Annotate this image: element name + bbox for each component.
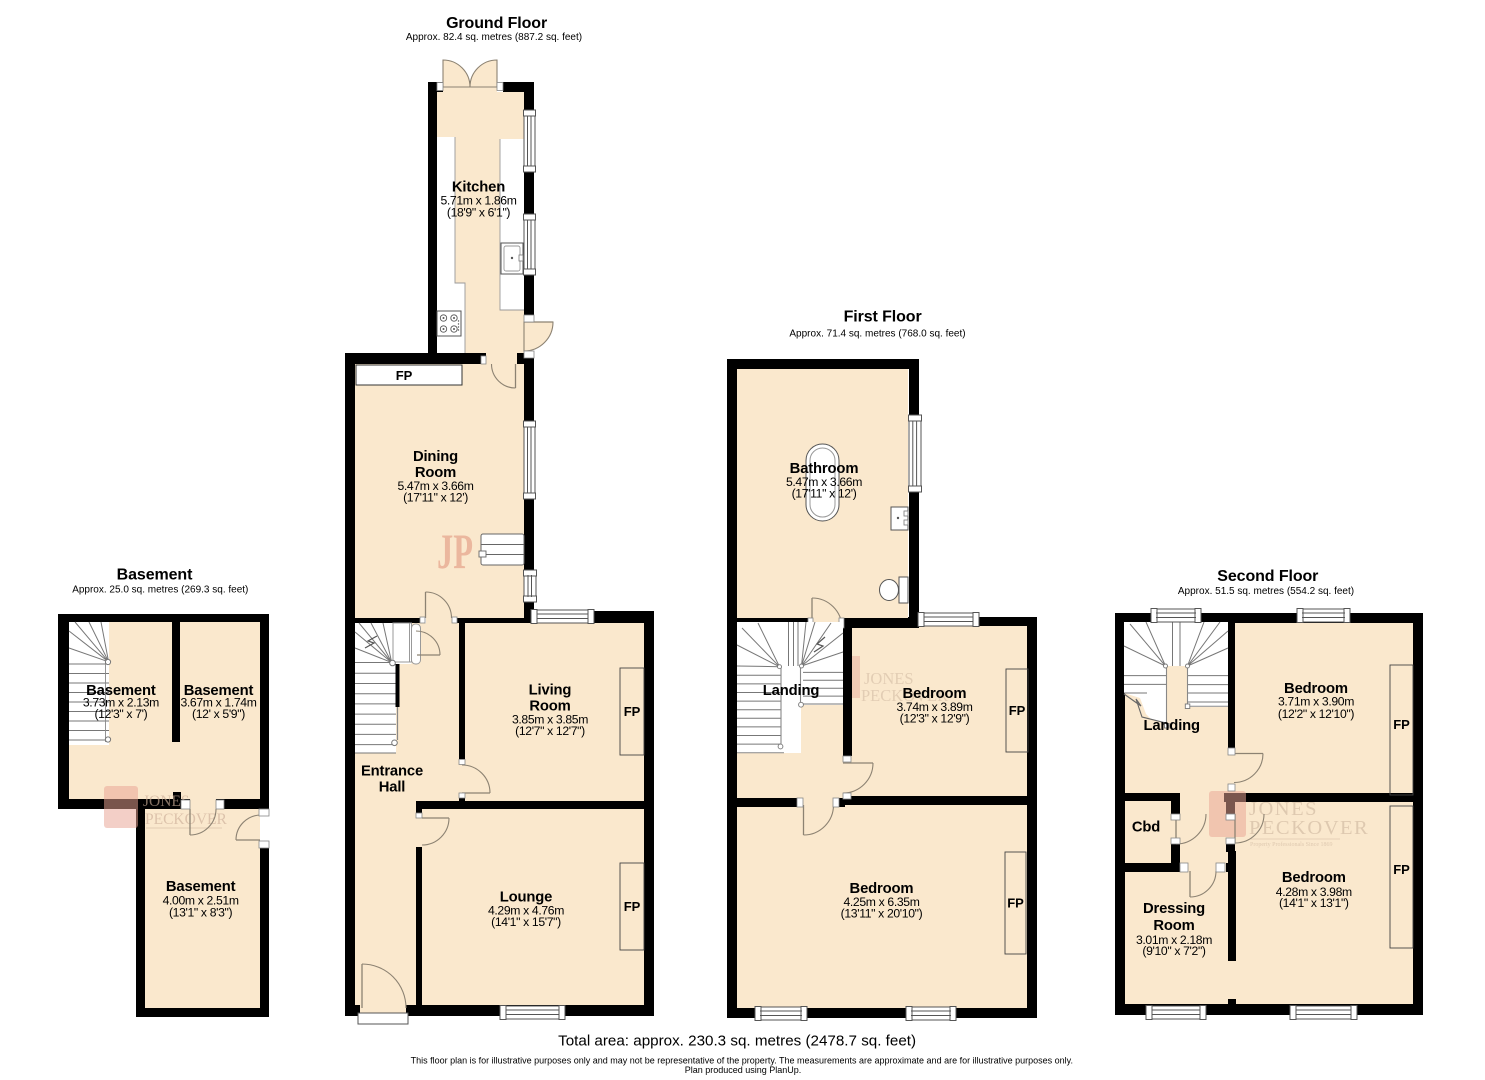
- svg-text:PECKOVER: PECKOVER: [1249, 817, 1369, 839]
- svg-text:(12'3" x 12'9"): (12'3" x 12'9"): [900, 712, 970, 726]
- svg-text:(12'7" x 12'7"): (12'7" x 12'7"): [515, 724, 585, 738]
- svg-text:Landing: Landing: [1143, 718, 1200, 734]
- svg-text:Cbd: Cbd: [1132, 820, 1160, 836]
- svg-text:(9'10" x 7'2"): (9'10" x 7'2"): [1142, 944, 1206, 958]
- svg-text:(12'2" x 12'10"): (12'2" x 12'10"): [1278, 707, 1354, 721]
- svg-text:(13'1" x 8'3"): (13'1" x 8'3"): [169, 906, 233, 920]
- svg-text:Property Professionals Since 1: Property Professionals Since 1869: [1250, 841, 1333, 848]
- svg-text:FP: FP: [624, 704, 641, 719]
- svg-text:Basement: Basement: [117, 567, 193, 584]
- svg-text:Bedroom: Bedroom: [1282, 870, 1346, 886]
- svg-text:Total area: approx. 230.3 sq.: Total area: approx. 230.3 sq. metres (24…: [558, 1033, 916, 1050]
- svg-text:Entrance: Entrance: [361, 764, 423, 780]
- svg-text:(14'1" x 13'1"): (14'1" x 13'1"): [1279, 896, 1349, 910]
- svg-text:FP: FP: [624, 899, 641, 914]
- svg-text:Landing: Landing: [763, 683, 820, 699]
- svg-text:(17'11" x 12'): (17'11" x 12'): [403, 491, 468, 505]
- svg-text:Plan produced using PlanUp.: Plan produced using PlanUp.: [685, 1065, 802, 1075]
- svg-text:(12' x 5'9"): (12' x 5'9"): [192, 707, 245, 721]
- svg-text:This floor plan is for illustr: This floor plan is for illustrative purp…: [411, 1056, 1073, 1066]
- svg-text:Dining: Dining: [413, 449, 458, 465]
- svg-text:Living: Living: [529, 683, 572, 699]
- svg-text:Hall: Hall: [379, 780, 406, 796]
- svg-text:FP: FP: [1393, 717, 1410, 732]
- svg-text:FP: FP: [1393, 862, 1410, 877]
- svg-text:Approx. 82.4 sq. metres (887.2: Approx. 82.4 sq. metres (887.2 sq. feet): [406, 32, 582, 43]
- svg-text:Approx. 25.0 sq. metres (269.3: Approx. 25.0 sq. metres (269.3 sq. feet): [72, 584, 248, 595]
- svg-text:(18'9" x 6'1"): (18'9" x 6'1"): [447, 206, 511, 220]
- svg-text:(14'1" x 15'7"): (14'1" x 15'7"): [491, 915, 561, 929]
- svg-text:JP: JP: [437, 523, 473, 579]
- svg-text:Dressing: Dressing: [1143, 901, 1205, 917]
- svg-text:Room: Room: [1153, 918, 1194, 934]
- svg-text:(12'3" x 7'): (12'3" x 7'): [94, 707, 147, 721]
- svg-text:(17'11" x 12'): (17'11" x 12'): [792, 487, 857, 501]
- svg-text:First Floor: First Floor: [844, 309, 922, 326]
- svg-text:Ground Floor: Ground Floor: [446, 15, 547, 32]
- svg-text:Second Floor: Second Floor: [1217, 568, 1318, 585]
- svg-text:Approx. 51.5 sq. metres (554.2: Approx. 51.5 sq. metres (554.2 sq. feet): [1178, 586, 1354, 597]
- svg-text:FP: FP: [396, 368, 413, 383]
- svg-text:Approx. 71.4 sq. metres (768.0: Approx. 71.4 sq. metres (768.0 sq. feet): [789, 329, 965, 340]
- svg-text:FP: FP: [1007, 896, 1024, 911]
- svg-text:(13'11" x 20'10"): (13'11" x 20'10"): [841, 907, 923, 921]
- svg-text:FP: FP: [1009, 703, 1026, 718]
